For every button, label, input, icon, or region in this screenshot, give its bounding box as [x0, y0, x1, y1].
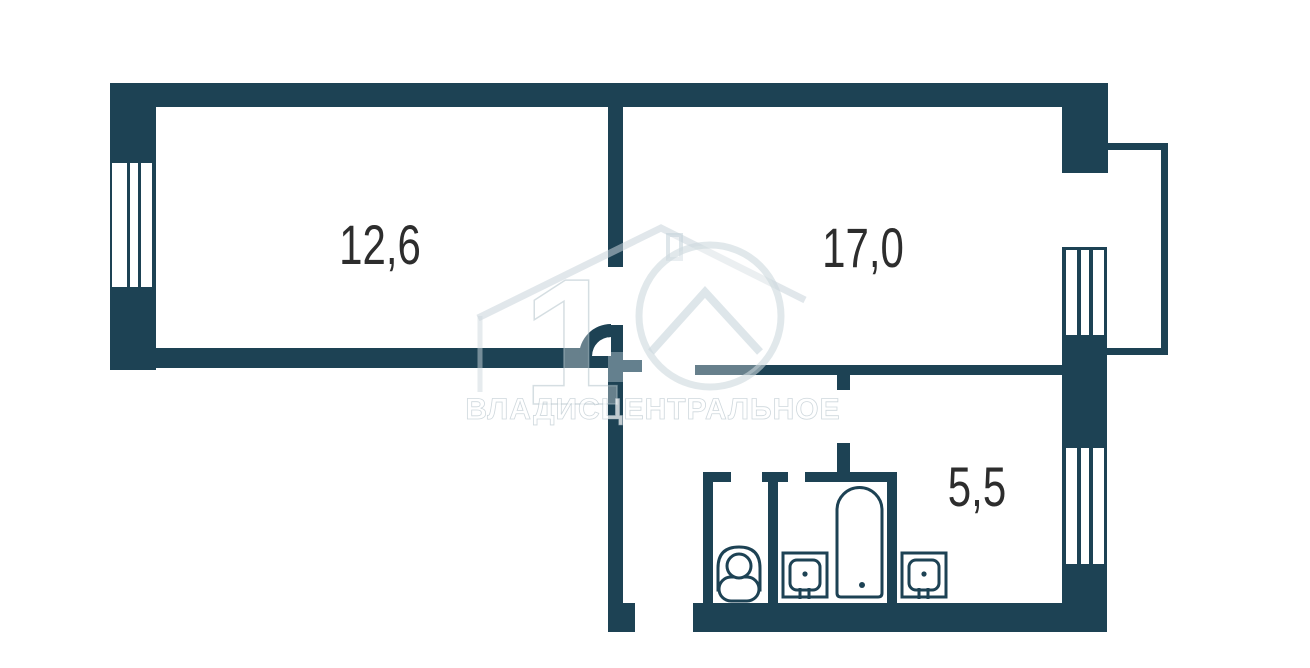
watermark-circle-icon	[639, 245, 781, 387]
watermark: 1 ВЛАДИСЦЕНТРАЛЬНОЕ	[465, 228, 840, 443]
sink-icon	[783, 553, 827, 599]
fixture-layer: 1 ВЛАДИСЦЕНТРАЛЬНОЕ	[0, 0, 1310, 668]
sink-icon-kitchen	[902, 553, 946, 599]
toilet-icon	[718, 547, 760, 601]
floor-plan: 12,6 17,0 5,5	[0, 0, 1310, 668]
watermark-text: ВЛАДИСЦЕНТРАЛЬНОЕ	[465, 393, 840, 426]
bathtub-icon	[837, 488, 882, 597]
